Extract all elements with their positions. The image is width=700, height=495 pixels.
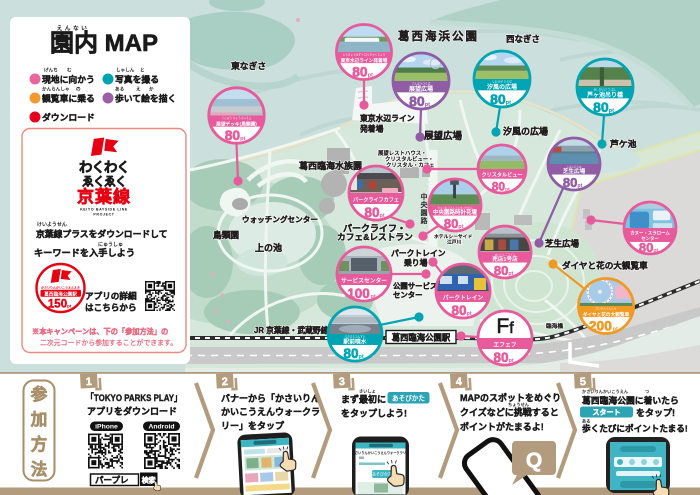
svg-text:えきまえふんすい: えきまえふんすい xyxy=(345,334,366,338)
svg-text:つ: つ xyxy=(645,389,649,394)
svg-text:JR 京葉線・武蔵野線: JR 京葉線・武蔵野線 xyxy=(254,325,329,335)
svg-text:ばいてん ごうてん: ばいてん ごうてん xyxy=(495,252,516,256)
svg-text:路: 路 xyxy=(421,216,429,225)
svg-text:葛西海浜公園: 葛西海浜公園 xyxy=(397,29,479,43)
svg-text:「TOKYO PARKS PLAY」: 「TOKYO PARKS PLAY」 xyxy=(86,392,182,404)
svg-text:パークトレイン: パークトレイン xyxy=(391,248,446,258)
svg-text:パークトレイン: パークトレイン xyxy=(443,294,484,302)
svg-text:芦ヶ池吊り橋: 芦ヶ池吊り橋 xyxy=(587,91,624,99)
svg-text:バナーから「かさいりん: バナーから「かさいりん xyxy=(221,393,320,404)
svg-text:芝生広場: 芝生広場 xyxy=(563,167,586,175)
svg-text:駅前噴水: 駅前噴水 xyxy=(343,338,366,346)
svg-text:KEIYO BAYSIDE LINE: KEIYO BAYSIDE LINE xyxy=(80,208,128,212)
svg-text:現地に向かう: 現地に向かう xyxy=(42,73,95,84)
svg-text:二次元コードから参加することができます。: 二次元コードから参加することができます。 xyxy=(40,338,177,347)
svg-text:3: 3 xyxy=(339,376,346,388)
svg-text:ちゅうおうえんろとけいかだん: ちゅうおうえんろとけいかだん xyxy=(437,205,473,209)
svg-text:スタート: スタート xyxy=(593,408,621,417)
svg-text:クイズなどに挑戦すると: クイズなどに挑戦すると xyxy=(460,407,559,418)
svg-text:かいこうえんウォークラ: かいこうえんウォークラ xyxy=(221,407,320,417)
svg-text:鳥類園: 鳥類園 xyxy=(213,229,239,240)
svg-text:売店1号店: 売店1号店 xyxy=(491,255,518,263)
svg-text:葛西臨海公園駅: 葛西臨海公園駅 xyxy=(391,333,451,343)
svg-text:ポイントがたまるよ!: ポイントがたまるよ! xyxy=(460,421,544,432)
svg-text:パープレ: パープレ xyxy=(95,475,129,485)
svg-text:東京水辺ライン: 東京水辺ライン xyxy=(360,113,415,123)
svg-text:中央園路時計花壇: 中央園路時計花壇 xyxy=(433,208,478,216)
svg-text:歩いて絵を描く: 歩いて絵を描く xyxy=(115,92,176,103)
svg-text:東京水辺ライン発着場: 東京水辺ライン発着場 xyxy=(341,57,388,64)
svg-text:葛西臨海公園駅: 葛西臨海公園駅 xyxy=(43,290,77,297)
svg-text:写真を撮る: 写真を撮る xyxy=(115,73,159,84)
svg-text:む: む xyxy=(67,67,72,74)
svg-text:ダイヤと花の大観覧車: ダイヤと花の大観覧車 xyxy=(583,311,630,318)
svg-text:ダイヤと花の大観覧車: ダイヤと花の大観覧車 xyxy=(562,260,648,271)
svg-text:さいしょ: さいしょ xyxy=(359,388,376,395)
svg-text:展望広場: 展望広場 xyxy=(424,130,463,142)
svg-text:エフェフ: エフェフ xyxy=(493,342,516,349)
svg-text:1: 1 xyxy=(86,376,93,388)
svg-text:カフェ&レストラン: カフェ&レストラン xyxy=(337,232,413,242)
svg-text:乗り場: 乗り場 xyxy=(403,258,428,268)
svg-text:と: と xyxy=(140,67,145,74)
svg-text:加: 加 xyxy=(30,410,48,429)
svg-text:臨海橋: 臨海橋 xyxy=(546,322,563,330)
svg-text:わくわく: わくわく xyxy=(79,160,129,175)
svg-text:まず最初に: まず最初に xyxy=(341,394,386,405)
svg-text:発着場: 発着場 xyxy=(359,124,384,134)
svg-text:あそびかた: あそびかた xyxy=(372,471,392,477)
svg-text:とうきょうみずべ はっちゃくじょう: とうきょうみずべ はっちゃくじょう xyxy=(343,52,386,56)
svg-text:クリスタルビュー: クリスタルビュー xyxy=(482,172,523,179)
svg-text:観覧車に乗る: 観覧車に乗る xyxy=(42,92,95,103)
svg-text:園: 園 xyxy=(421,208,428,217)
svg-text:園内 MAP: 園内 MAP xyxy=(50,30,158,57)
svg-text:江戸川: 江戸川 xyxy=(447,239,462,246)
svg-text:展望レストハウス・: 展望レストハウス・ xyxy=(378,149,427,157)
svg-text:パークライフカフェ: パークライフカフェ xyxy=(353,197,399,204)
svg-text:かさいりんかいこうえん: かさいりんかいこうえん xyxy=(582,388,629,395)
svg-text:をタップしよう!: をタップしよう! xyxy=(341,408,407,419)
svg-text:キーワードを入手しよう: キーワードを入手しよう xyxy=(34,247,135,258)
svg-text:けいようせん: けいようせん xyxy=(37,221,67,228)
svg-text:しおかぜ ひろば: しおかぜ ひろば xyxy=(492,80,512,84)
svg-text:央: 央 xyxy=(421,200,429,209)
svg-text:京葉線: 京葉線 xyxy=(77,187,131,207)
svg-text:クリスタルビュー・: クリスタルビュー・ xyxy=(385,155,434,163)
svg-text:サービスセンター: サービスセンター xyxy=(341,277,387,285)
svg-text:ホテルシーサイド: ホテルシーサイド xyxy=(434,233,472,240)
svg-text:アプリの詳細: アプリの詳細 xyxy=(85,290,137,301)
svg-text:※本キャンペーンは、下の「参加方法」の: ※本キャンペーンは、下の「参加方法」の xyxy=(32,327,168,336)
svg-text:東なぎさ: 東なぎさ xyxy=(231,60,266,71)
svg-text:公園サービス: 公園サービス xyxy=(393,282,437,291)
svg-text:あしがいけ つ ばし: あしがいけ つ ばし xyxy=(593,88,616,92)
svg-text:Q: Q xyxy=(526,449,542,472)
svg-text:iPhone: iPhone xyxy=(95,424,118,431)
svg-text:リー」をタップ: リー」をタップ xyxy=(221,420,285,431)
svg-text:PROJECT: PROJECT xyxy=(93,213,114,217)
svg-text:しばふひろば: しばふひろば xyxy=(566,164,582,168)
svg-text:2: 2 xyxy=(222,376,229,388)
svg-text:はこちらから: はこちらから xyxy=(85,303,137,313)
svg-text:ウォッチングセンター: ウォッチングセンター xyxy=(242,214,318,224)
svg-text:上の池: 上の池 xyxy=(255,242,282,253)
svg-text:京葉線プラスをダウンロードして: 京葉線プラスをダウンロードして xyxy=(36,228,168,239)
svg-text:法: 法 xyxy=(31,459,48,479)
svg-text:芦ケ池: 芦ケ池 xyxy=(610,138,637,149)
svg-text:中: 中 xyxy=(421,192,428,201)
svg-text:汐風の広場: 汐風の広場 xyxy=(503,126,548,137)
svg-text:葛西臨海水族園: 葛西臨海水族園 xyxy=(298,160,362,171)
svg-text:西なぎさ: 西なぎさ xyxy=(506,34,540,44)
svg-text:5: 5 xyxy=(580,376,587,388)
svg-text:てんぼうひろば: てんぼうひろば xyxy=(412,82,431,86)
svg-text:展望広場: 展望広場 xyxy=(409,85,433,93)
svg-text:しゃしん: しゃしん xyxy=(116,67,135,74)
svg-text:げんち: げんち xyxy=(44,67,58,74)
svg-text:あそびかた: あそびかた xyxy=(392,394,425,403)
svg-text:方: 方 xyxy=(31,434,48,454)
svg-text:かさいりんかいこうえんえき: かさいりんかいこうえんえき xyxy=(41,284,80,289)
svg-text:検索: 検索 xyxy=(142,475,156,484)
svg-text:150: 150 xyxy=(48,299,67,311)
svg-text:Android: Android xyxy=(148,424,174,431)
svg-text:センター: センター xyxy=(393,291,423,300)
svg-text:か: か xyxy=(149,86,154,93)
svg-text:ダウンロード: ダウンロード xyxy=(42,111,95,122)
svg-text:汐風の広場: 汐風の広場 xyxy=(487,83,517,91)
svg-text:参: 参 xyxy=(31,384,48,404)
svg-text:かんらんしゃ: かんらんしゃ xyxy=(42,86,70,93)
svg-text:ゑくゑく: ゑくゑく xyxy=(82,175,126,189)
svg-text:をタップ!: をタップ! xyxy=(636,407,675,418)
svg-text:葛西臨海公園に着いたら: 葛西臨海公園に着いたら xyxy=(581,395,679,406)
svg-text:芝生広場: 芝生広場 xyxy=(545,239,580,249)
svg-text:アプリをダウンロード: アプリをダウンロード xyxy=(87,406,177,417)
svg-text:かさいりんかいこうえんウォークラリー: かさいりんかいこうえんウォークラリー xyxy=(352,450,409,455)
svg-text:pt: pt xyxy=(67,304,72,309)
svg-text:てんぼう ちょうるいえん: てんぼう ちょうるいえん xyxy=(222,116,252,120)
svg-text:歩くたびにポイントたまる!: 歩くたびにポイントたまる! xyxy=(582,423,688,434)
svg-text:だいかんらんしゃ: だいかんらんしゃ xyxy=(595,306,616,310)
